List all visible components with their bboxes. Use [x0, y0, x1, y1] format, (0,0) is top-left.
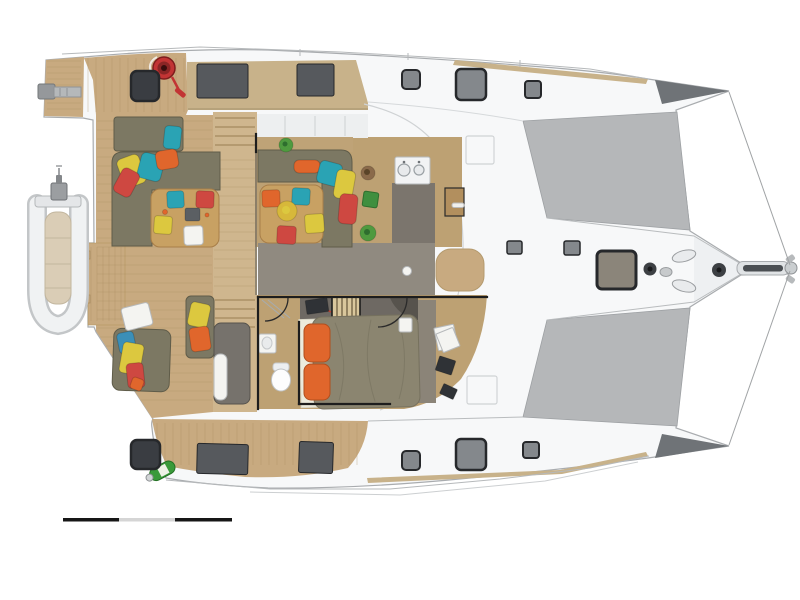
trampoline-port	[523, 112, 690, 230]
cockpit-pillow-orange	[155, 148, 180, 171]
bridle-line-starboard	[729, 271, 790, 445]
coachroof-window-port-fwd	[297, 64, 334, 96]
stern-deck-starboard	[152, 419, 368, 477]
deck-plan-canvas	[0, 0, 800, 600]
cockpit-table-tray	[185, 208, 200, 221]
forward-door	[445, 188, 464, 216]
saloon-front-window-strip	[257, 114, 368, 138]
davit-base	[38, 84, 55, 99]
aft-center-platform	[88, 243, 125, 325]
saloon-pillow-orange	[294, 160, 320, 173]
cabinet-white-pad	[214, 354, 227, 400]
foredeck-hatch-starboard-aft	[402, 451, 420, 470]
scale-bar-segment-3	[175, 518, 232, 522]
forward-door-handle	[452, 203, 464, 208]
bow-roller	[660, 268, 672, 277]
forward-cockpit-seat	[436, 249, 484, 291]
bench-pillow-yellow	[187, 301, 212, 329]
cockpit-table-plate	[184, 226, 204, 246]
saloon-seat-cushion-orange	[262, 190, 281, 208]
scale-bar-segment-2	[119, 518, 175, 522]
foredeck-hatch-port-aft	[402, 70, 420, 89]
bow-locker-hatch	[597, 251, 636, 289]
winch-drum-center	[161, 65, 167, 71]
sideboard-pot-detail	[364, 169, 370, 175]
bed-pillow-orange-lower	[304, 364, 330, 400]
cockpit-seat-cushion-yellow	[153, 215, 172, 234]
saloon-seat-cushion-yellow	[304, 213, 324, 233]
cockpit-seat-cushion-red	[196, 191, 215, 209]
foredeck-hatch-starboard-main	[456, 439, 486, 470]
saloon-seat-cushion-red	[277, 226, 297, 245]
cockpit-sunpad-pillow-teal	[163, 125, 182, 150]
toilet-bowl	[272, 369, 291, 391]
foredeck-hatch-port-main	[456, 69, 486, 100]
bow-fitting-center	[717, 268, 722, 273]
cockpit-table-fruit	[163, 210, 168, 215]
foredeck-hatch-port-fwd	[525, 81, 541, 98]
saloon-seat-cushion-teal	[292, 188, 311, 206]
bow-hatch-small-port	[507, 241, 522, 254]
saloon-table-fruit-bowl-detail	[282, 206, 290, 214]
hullside-window-starboard-aft	[197, 443, 249, 474]
bench-pillow-orange	[188, 326, 211, 353]
bowsprit-tip-fitting	[785, 262, 797, 274]
deck-plan-stage	[0, 0, 800, 600]
scale-bar	[63, 518, 232, 522]
trampoline-starboard	[523, 308, 690, 426]
galley-faucet-left	[403, 161, 406, 164]
galley-sink-right	[414, 165, 424, 175]
aft-deck-hatch-starboard	[131, 440, 160, 469]
cockpit-seat-cushion-teal	[167, 191, 185, 209]
sideboard-plant-detail	[364, 229, 370, 235]
hullside-window-starboard-fwd	[298, 441, 333, 473]
saloon-plant-detail	[283, 142, 288, 147]
outboard-shaft	[56, 175, 62, 184]
dinghy-interior	[45, 212, 71, 304]
dinghy	[35, 166, 90, 325]
corridor-deck-light	[403, 267, 412, 276]
foredeck-hatch-starboard-fwd	[523, 442, 539, 458]
bowsprit-track	[743, 265, 783, 272]
windlass-center	[648, 267, 653, 272]
saloon-pillow-red	[338, 193, 359, 224]
sideboard-green-box	[362, 191, 379, 208]
bed-pillow-orange-upper	[304, 324, 330, 362]
bridle-line-port	[729, 92, 790, 265]
galley-faucet-right	[418, 161, 421, 164]
cockpit-table-item	[205, 213, 209, 217]
galley-floor	[392, 183, 435, 245]
cabin-laptop	[305, 298, 329, 315]
scale-bar-segment-1	[63, 518, 119, 522]
bedside-switch-panel	[399, 318, 412, 332]
aft-deck-hatch-port	[131, 71, 159, 101]
bow-hatch-small-starboard	[564, 241, 580, 255]
outboard-motor	[51, 183, 67, 200]
bathroom-sink-bowl	[262, 337, 272, 349]
coachroof-window-port-aft	[197, 64, 248, 98]
galley-sink-left	[398, 164, 410, 176]
